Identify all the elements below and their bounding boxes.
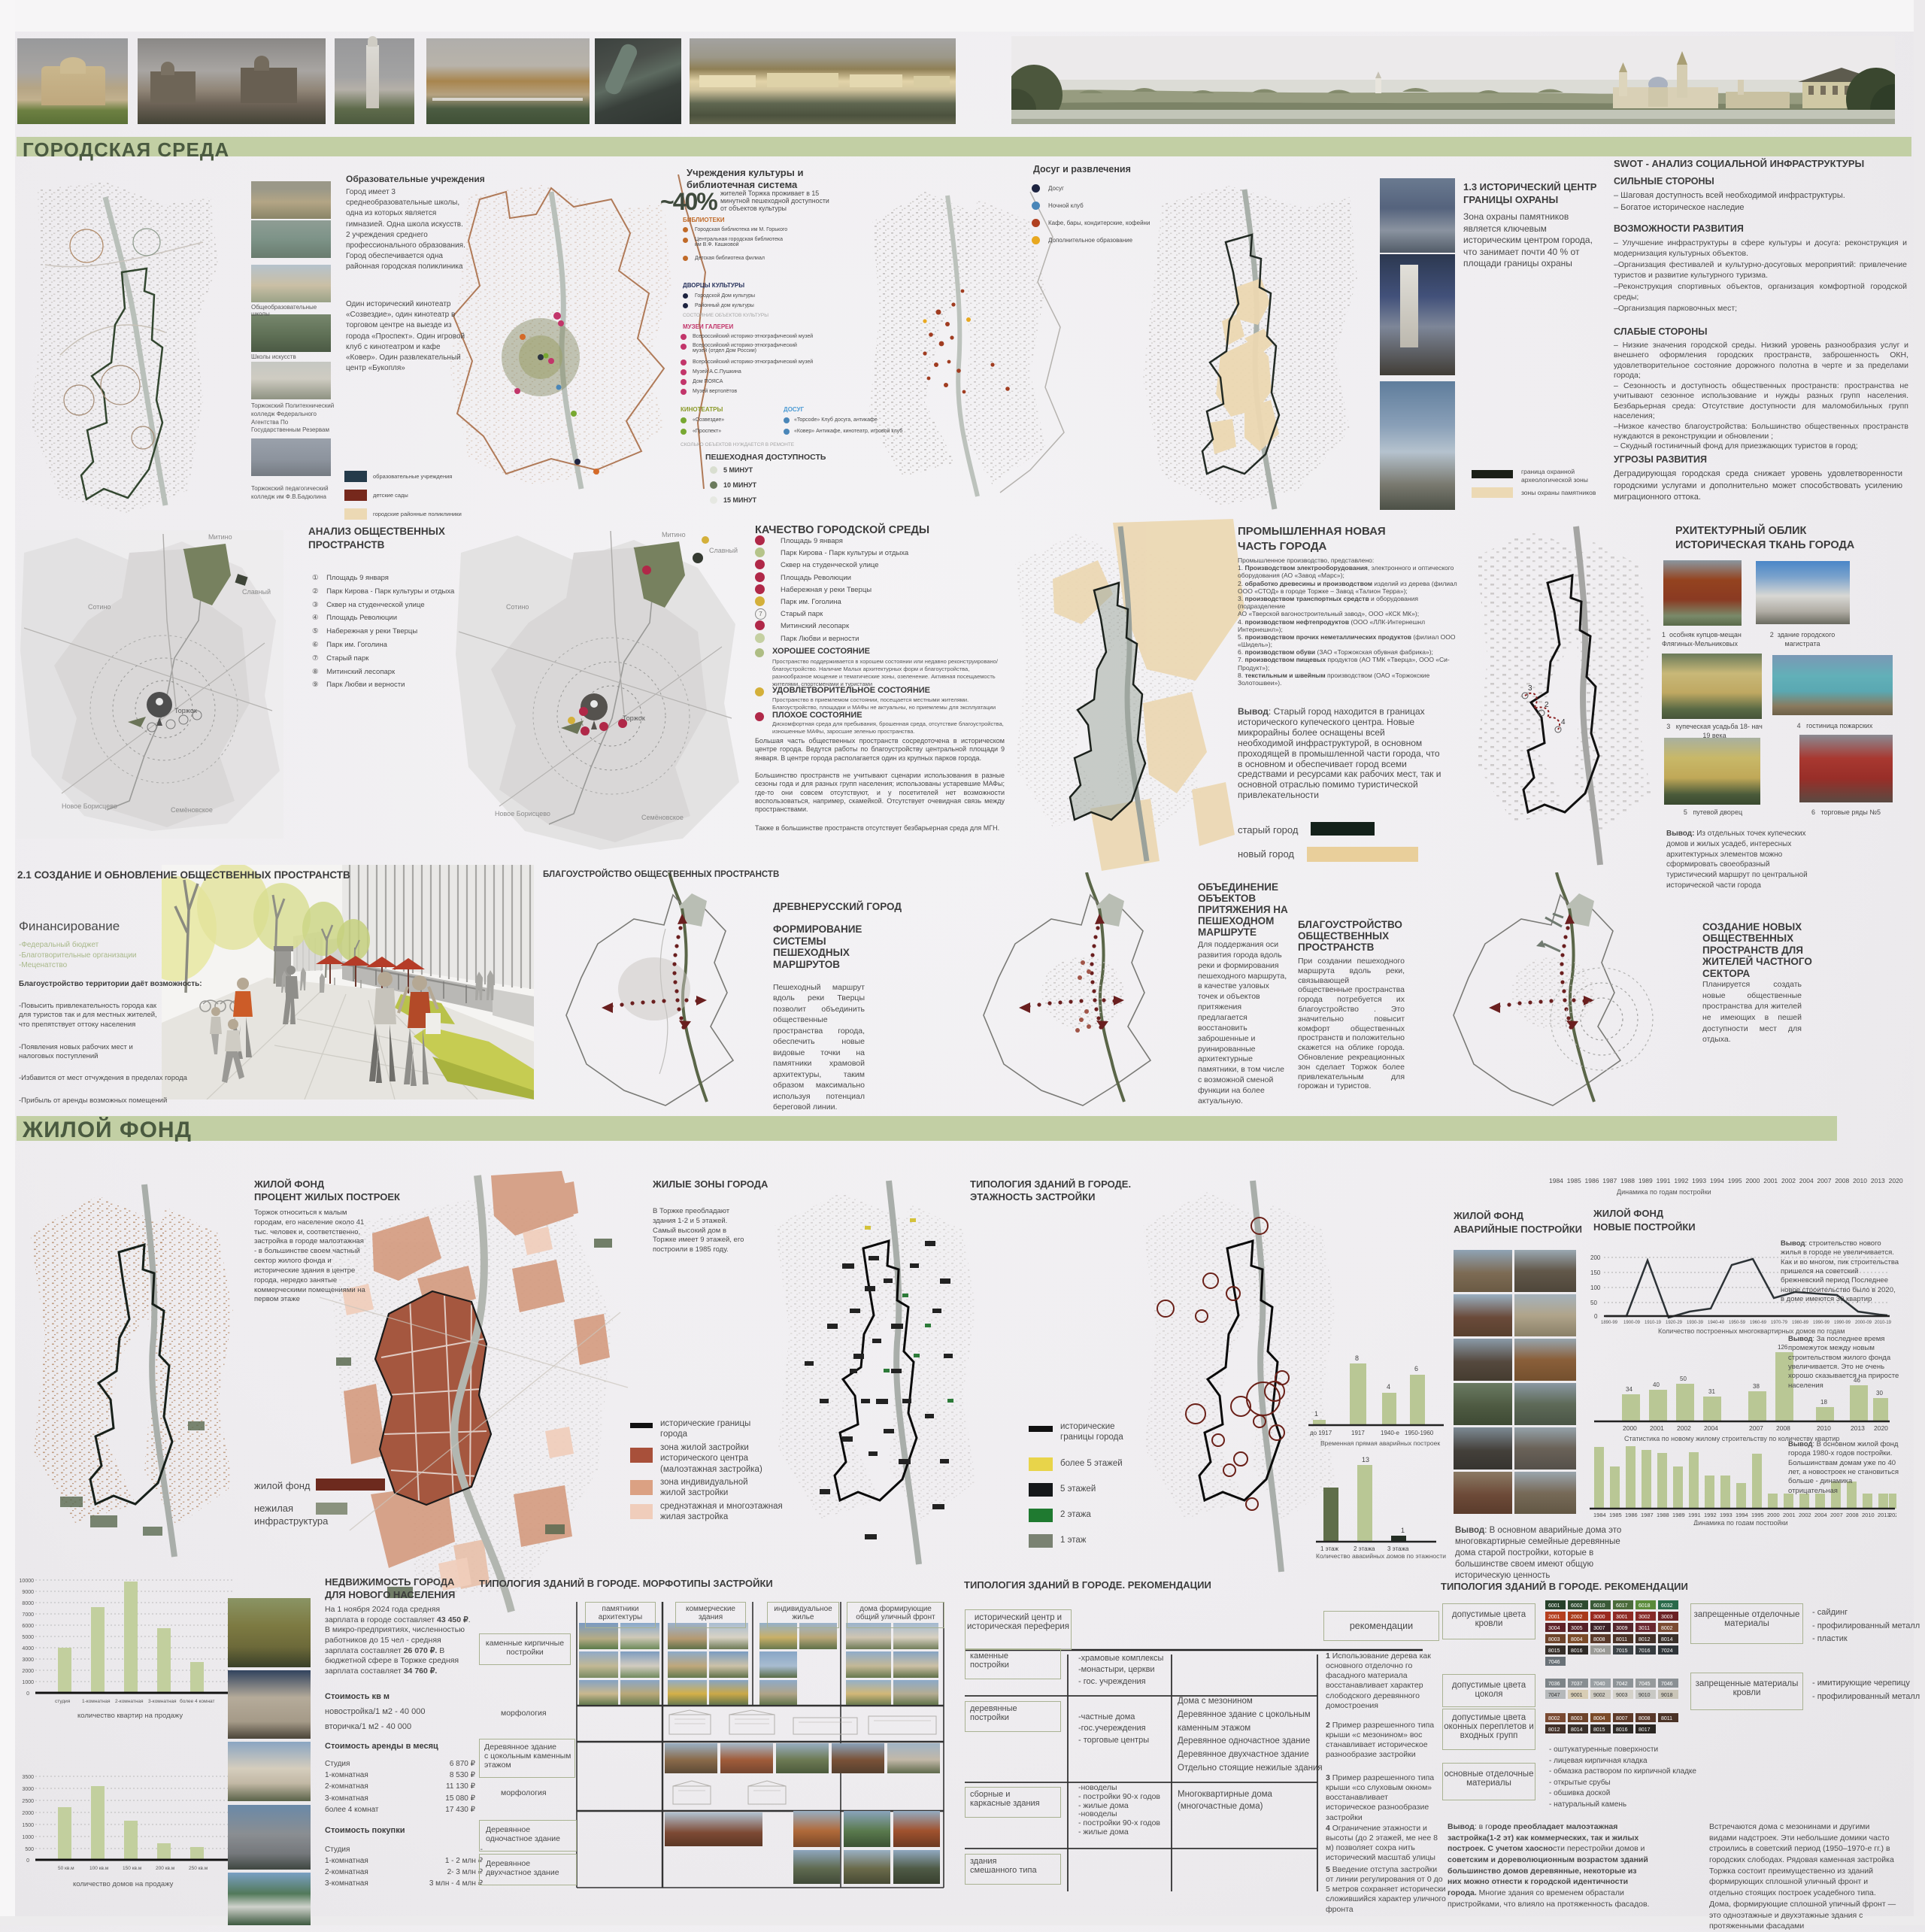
svg-text:7037: 7037: [1571, 1682, 1583, 1687]
svg-text:8004: 8004: [1593, 1716, 1605, 1721]
svg-text:1987: 1987: [1641, 1512, 1654, 1518]
svg-text:8012: 8012: [1548, 1727, 1560, 1733]
svg-text:250 кв.м: 250 кв.м: [189, 1866, 208, 1871]
svg-text:Временная прямая аварийных пос: Временная прямая аварийных построек: [1320, 1439, 1440, 1447]
svg-text:10000: 10000: [20, 1579, 35, 1584]
svg-text:7004: 7004: [1593, 1648, 1605, 1654]
svg-text:2007: 2007: [1749, 1424, 1763, 1432]
svg-text:9001: 9001: [1571, 1693, 1583, 1698]
svg-text:1940-е: 1940-е: [1381, 1430, 1399, 1436]
svg-text:1960-69: 1960-69: [1750, 1321, 1767, 1325]
svg-text:5000: 5000: [22, 1635, 34, 1640]
svg-text:1: 1: [1314, 1410, 1318, 1418]
svg-text:1992: 1992: [1704, 1512, 1717, 1518]
svg-text:Митино: Митино: [208, 533, 232, 541]
svg-text:Торжок: Торжок: [174, 707, 197, 714]
svg-text:7042: 7042: [1616, 1682, 1628, 1687]
svg-text:1000: 1000: [22, 1835, 34, 1840]
svg-text:2010: 2010: [1862, 1512, 1875, 1518]
svg-text:3003: 3003: [1661, 1615, 1673, 1620]
svg-text:2020: 2020: [1874, 1424, 1888, 1432]
svg-text:9010: 9010: [1639, 1693, 1651, 1698]
svg-text:1995: 1995: [1751, 1512, 1764, 1518]
svg-text:500: 500: [25, 1847, 34, 1852]
svg-text:1980-89: 1980-89: [1792, 1321, 1809, 1325]
svg-text:3 этажа: 3 этажа: [1387, 1545, 1409, 1552]
svg-text:3007: 3007: [1593, 1626, 1605, 1631]
svg-text:50 кв.м: 50 кв.м: [58, 1866, 74, 1871]
svg-text:Славный: Славный: [709, 547, 738, 554]
svg-text:2008: 2008: [1846, 1512, 1859, 1518]
svg-text:2004: 2004: [1814, 1512, 1827, 1518]
svg-text:1910-19: 1910-19: [1645, 1321, 1662, 1325]
svg-text:8016: 8016: [1571, 1648, 1583, 1654]
svg-text:2001: 2001: [1650, 1424, 1664, 1432]
svg-text:100 кв.м: 100 кв.м: [89, 1866, 109, 1871]
svg-text:2000: 2000: [22, 1811, 34, 1816]
svg-text:2008: 2008: [1776, 1424, 1790, 1432]
svg-text:126: 126: [1778, 1344, 1788, 1351]
svg-text:2000-09: 2000-09: [1855, 1321, 1872, 1325]
svg-text:2010-19: 2010-19: [1875, 1321, 1891, 1325]
svg-text:Славный: Славный: [242, 588, 271, 596]
svg-text:0: 0: [26, 1858, 29, 1864]
svg-text:1500: 1500: [22, 1823, 34, 1828]
svg-text:9018: 9018: [1661, 1693, 1673, 1698]
svg-text:8008: 8008: [1593, 1637, 1605, 1642]
svg-text:150: 150: [1590, 1269, 1601, 1276]
svg-text:1988: 1988: [1657, 1512, 1669, 1518]
svg-text:4: 4: [1561, 718, 1566, 726]
svg-text:38: 38: [1753, 1383, 1760, 1390]
svg-text:Сотино: Сотино: [506, 603, 529, 611]
svg-text:количество квартир на продажу: количество квартир на продажу: [77, 1712, 183, 1720]
svg-text:2-комнатная: 2-комнатная: [115, 1699, 144, 1704]
svg-text:6032: 6032: [1661, 1603, 1673, 1609]
svg-text:4000: 4000: [22, 1646, 34, 1651]
svg-text:31: 31: [1708, 1388, 1715, 1395]
svg-text:2: 2: [1545, 701, 1549, 709]
svg-text:1970-79: 1970-79: [1771, 1321, 1788, 1325]
svg-text:8017: 8017: [1639, 1727, 1651, 1733]
svg-text:8003: 8003: [1571, 1716, 1583, 1721]
svg-text:7040: 7040: [1593, 1682, 1605, 1687]
svg-text:2010: 2010: [1817, 1424, 1831, 1432]
svg-text:1: 1: [1401, 1527, 1405, 1534]
svg-text:Семёновское: Семёновское: [171, 806, 213, 814]
svg-text:2001: 2001: [1783, 1512, 1796, 1518]
svg-text:3500: 3500: [22, 1775, 34, 1780]
svg-text:3002: 3002: [1639, 1615, 1651, 1620]
svg-text:1985: 1985: [1609, 1512, 1622, 1518]
svg-text:студия: студия: [55, 1699, 71, 1704]
svg-text:6010: 6010: [1593, 1603, 1605, 1609]
svg-text:1930-39: 1930-39: [1687, 1321, 1704, 1325]
svg-text:7046: 7046: [1548, 1660, 1560, 1665]
svg-text:2002: 2002: [1571, 1615, 1583, 1620]
svg-text:Торжок: Торжок: [623, 714, 645, 722]
svg-text:6002: 6002: [1571, 1603, 1583, 1609]
svg-text:2000: 2000: [1767, 1512, 1780, 1518]
svg-text:8002: 8002: [1661, 1626, 1673, 1631]
svg-text:200: 200: [1590, 1254, 1601, 1261]
svg-text:3001: 3001: [1616, 1615, 1628, 1620]
svg-text:Количество аварийных домов по: Количество аварийных домов по этажности: [1316, 1552, 1446, 1558]
svg-text:1984: 1984: [1593, 1512, 1606, 1518]
svg-text:8014: 8014: [1571, 1727, 1583, 1733]
svg-text:0: 0: [26, 1691, 29, 1697]
svg-text:Количество построенных многокв: Количество построенных многоквартирных д…: [1658, 1327, 1845, 1335]
svg-text:3004: 3004: [1548, 1626, 1560, 1631]
svg-text:2013: 2013: [1851, 1424, 1865, 1432]
svg-text:6001: 6001: [1548, 1603, 1560, 1609]
svg-text:1 этаж: 1 этаж: [1320, 1545, 1339, 1552]
svg-text:8012: 8012: [1639, 1637, 1651, 1642]
svg-text:40: 40: [1653, 1382, 1660, 1388]
svg-text:1917: 1917: [1351, 1430, 1365, 1436]
svg-text:1990-99: 1990-99: [1813, 1321, 1830, 1325]
svg-text:8002: 8002: [1548, 1716, 1560, 1721]
svg-text:50: 50: [1590, 1300, 1597, 1306]
svg-text:1991: 1991: [1688, 1512, 1701, 1518]
svg-text:50: 50: [1680, 1375, 1687, 1382]
svg-text:3000: 3000: [22, 1658, 34, 1663]
svg-text:8011: 8011: [1661, 1716, 1672, 1721]
svg-text:2020: 2020: [1889, 1512, 1896, 1518]
svg-text:8004: 8004: [1571, 1637, 1583, 1642]
svg-text:более 4 комнат: более 4 комнат: [180, 1698, 215, 1704]
svg-text:Новое Борисцево: Новое Борисцево: [62, 802, 117, 810]
svg-text:8011: 8011: [1616, 1637, 1627, 1642]
svg-text:2002: 2002: [1677, 1424, 1691, 1432]
svg-text:7047: 7047: [1548, 1693, 1560, 1698]
svg-text:8: 8: [1355, 1354, 1359, 1362]
svg-text:1950-1960: 1950-1960: [1405, 1430, 1434, 1436]
svg-text:количество домов на продажу: количество домов на продажу: [73, 1880, 174, 1888]
svg-text:9002: 9002: [1593, 1693, 1605, 1698]
svg-text:9003: 9003: [1616, 1693, 1628, 1698]
svg-text:1986: 1986: [1625, 1512, 1638, 1518]
svg-text:1940-49: 1940-49: [1708, 1321, 1725, 1325]
svg-text:7046: 7046: [1661, 1682, 1673, 1687]
svg-text:8014: 8014: [1661, 1637, 1673, 1642]
svg-text:2001: 2001: [1548, 1615, 1560, 1620]
svg-text:2000: 2000: [1623, 1424, 1637, 1432]
svg-text:3: 3: [1528, 684, 1532, 693]
svg-text:2007: 2007: [1830, 1512, 1843, 1518]
svg-text:1950-59: 1950-59: [1729, 1321, 1746, 1325]
svg-text:1920-29: 1920-29: [1666, 1321, 1683, 1325]
svg-text:8016: 8016: [1616, 1727, 1628, 1733]
svg-text:7036: 7036: [1548, 1682, 1560, 1687]
svg-text:18: 18: [1820, 1399, 1827, 1406]
svg-text:1993: 1993: [1720, 1512, 1732, 1518]
svg-text:3-комнатная: 3-комнатная: [148, 1699, 177, 1704]
svg-text:3011: 3011: [1639, 1626, 1650, 1631]
svg-text:8015: 8015: [1548, 1648, 1560, 1654]
svg-text:6017: 6017: [1616, 1603, 1628, 1609]
svg-text:1-комнатная: 1-комнатная: [82, 1699, 111, 1704]
svg-text:Семёновское: Семёновское: [641, 814, 684, 821]
svg-text:8003: 8003: [1548, 1637, 1560, 1642]
svg-text:до 1917: до 1917: [1310, 1430, 1332, 1436]
svg-text:1890-99: 1890-99: [1601, 1321, 1618, 1325]
svg-text:2 этажа: 2 этажа: [1354, 1545, 1375, 1552]
svg-text:4: 4: [1387, 1383, 1390, 1391]
svg-text:34: 34: [1626, 1386, 1632, 1393]
svg-text:6018: 6018: [1639, 1603, 1651, 1609]
svg-text:6000: 6000: [22, 1624, 34, 1629]
svg-text:1900-09: 1900-09: [1623, 1321, 1641, 1325]
svg-text:Новое Борисцево: Новое Борисцево: [495, 810, 550, 817]
svg-text:2002: 2002: [1799, 1512, 1811, 1518]
svg-text:7000: 7000: [22, 1612, 34, 1618]
svg-text:2000: 2000: [22, 1669, 34, 1674]
svg-text:8000: 8000: [22, 1601, 34, 1606]
svg-text:7024: 7024: [1661, 1648, 1673, 1654]
svg-text:1994: 1994: [1736, 1512, 1748, 1518]
svg-text:3000: 3000: [22, 1787, 34, 1792]
svg-text:1989: 1989: [1672, 1512, 1685, 1518]
svg-text:8007: 8007: [1616, 1716, 1628, 1721]
svg-text:3009: 3009: [1616, 1626, 1628, 1631]
svg-text:13: 13: [1362, 1456, 1369, 1463]
svg-text:150 кв.м: 150 кв.м: [123, 1866, 142, 1871]
svg-text:1990-99: 1990-99: [1834, 1321, 1851, 1325]
svg-text:Динамика по годам постройки: Динамика по годам постройки: [1693, 1519, 1788, 1525]
svg-text:7015: 7015: [1616, 1648, 1628, 1654]
svg-text:Сотино: Сотино: [88, 603, 111, 611]
svg-text:8015: 8015: [1593, 1727, 1605, 1733]
svg-text:9000: 9000: [22, 1590, 34, 1595]
svg-text:6: 6: [1414, 1365, 1418, 1372]
svg-text:8008: 8008: [1639, 1716, 1651, 1721]
svg-text:3005: 3005: [1571, 1626, 1583, 1631]
svg-text:3000: 3000: [1593, 1615, 1605, 1620]
svg-text:1000: 1000: [22, 1680, 34, 1685]
svg-text:2500: 2500: [22, 1799, 34, 1804]
svg-text:7016: 7016: [1639, 1648, 1651, 1654]
svg-text:7045: 7045: [1639, 1682, 1651, 1687]
svg-text:2004: 2004: [1704, 1424, 1718, 1432]
svg-text:200 кв.м: 200 кв.м: [156, 1866, 175, 1871]
svg-text:100: 100: [1590, 1284, 1601, 1291]
svg-text:30: 30: [1876, 1390, 1883, 1397]
svg-text:0: 0: [1594, 1313, 1598, 1320]
svg-text:Митино: Митино: [662, 531, 686, 538]
